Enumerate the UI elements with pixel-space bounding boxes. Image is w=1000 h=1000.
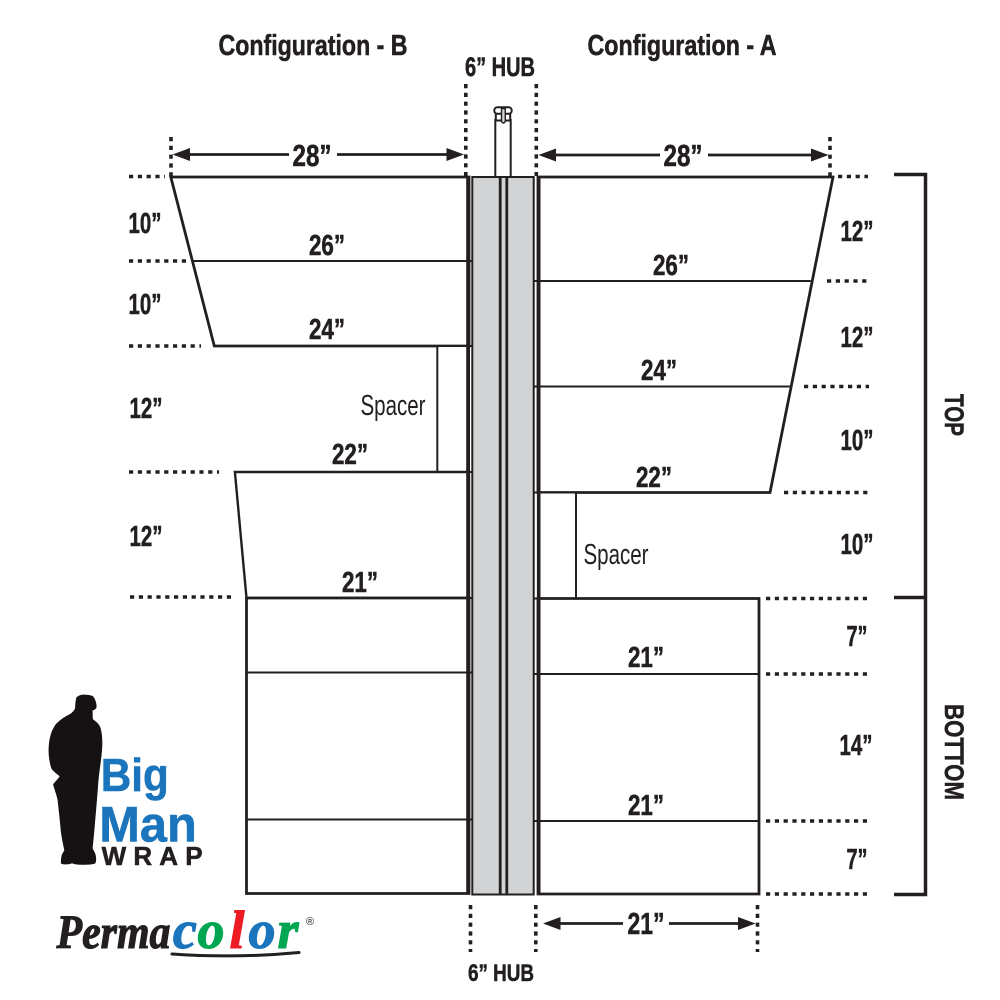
svg-text:6” HUB: 6” HUB <box>468 960 534 987</box>
svg-text:BOTTOM: BOTTOM <box>939 704 969 800</box>
svg-text:21”: 21” <box>628 906 665 941</box>
svg-text:10”: 10” <box>129 289 162 321</box>
svg-text:22”: 22” <box>636 462 672 494</box>
svg-text:Perma: Perma <box>56 906 171 959</box>
svg-text:28”: 28” <box>664 138 703 173</box>
svg-text:24”: 24” <box>641 355 677 387</box>
svg-text:Configuration - B: Configuration - B <box>219 30 408 62</box>
svg-text:14”: 14” <box>840 730 873 762</box>
svg-text:10”: 10” <box>841 529 874 561</box>
svg-text:21”: 21” <box>342 567 378 599</box>
svg-text:22”: 22” <box>332 439 368 471</box>
svg-text:21”: 21” <box>628 790 664 822</box>
svg-text:o: o <box>249 900 276 960</box>
svg-text:Spacer: Spacer <box>361 390 426 422</box>
svg-text:12”: 12” <box>841 216 874 248</box>
svg-text:7”: 7” <box>847 621 868 653</box>
svg-text:21”: 21” <box>628 642 664 674</box>
svg-text:28”: 28” <box>293 138 332 173</box>
svg-text:Spacer: Spacer <box>584 539 649 571</box>
svg-text:10”: 10” <box>841 425 874 457</box>
svg-text:WRAP: WRAP <box>102 841 203 871</box>
svg-text:Big: Big <box>101 749 169 801</box>
svg-text:26”: 26” <box>653 250 689 282</box>
svg-text:12”: 12” <box>130 393 163 425</box>
svg-text:TOP: TOP <box>939 394 969 436</box>
svg-text:12”: 12” <box>130 521 163 553</box>
svg-text:l: l <box>229 900 244 960</box>
svg-text:c: c <box>173 900 197 960</box>
svg-text:®: ® <box>306 916 314 928</box>
svg-text:7”: 7” <box>847 844 868 876</box>
svg-text:26”: 26” <box>309 230 345 262</box>
svg-text:24”: 24” <box>309 314 345 346</box>
svg-text:Configuration - A: Configuration - A <box>588 30 777 62</box>
svg-text:o: o <box>198 900 225 960</box>
svg-text:12”: 12” <box>841 322 874 354</box>
svg-text:6” HUB: 6” HUB <box>465 52 535 82</box>
svg-text:10”: 10” <box>129 208 162 240</box>
svg-text:r: r <box>277 900 299 960</box>
